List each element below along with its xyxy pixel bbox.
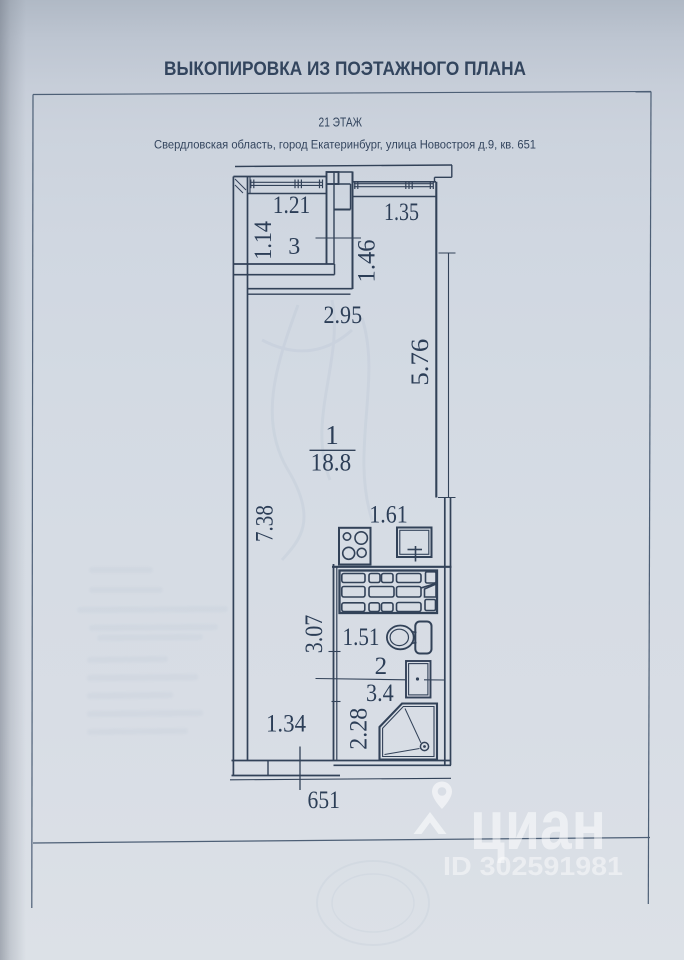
svg-text:2: 2 [375, 653, 388, 680]
svg-text:1.14: 1.14 [250, 221, 277, 260]
svg-text:1.35: 1.35 [384, 199, 419, 226]
svg-text:5.76: 5.76 [407, 339, 434, 386]
svg-text:3.4: 3.4 [366, 680, 394, 707]
svg-text:Свердловская область, город Ек: Свердловская область, город Екатеринбург… [154, 140, 536, 152]
svg-text:2.95: 2.95 [324, 302, 363, 329]
svg-text:1.51: 1.51 [343, 624, 380, 651]
svg-text:2.28: 2.28 [346, 708, 373, 750]
svg-text:3: 3 [288, 234, 300, 260]
svg-text:18.8: 18.8 [311, 450, 352, 477]
svg-text:ID 302591981: ID 302591981 [443, 851, 623, 881]
svg-text:21 ЭТАЖ: 21 ЭТАЖ [319, 116, 363, 130]
svg-text:1.21: 1.21 [273, 192, 310, 219]
svg-text:651: 651 [308, 787, 340, 814]
svg-text:7.38: 7.38 [252, 505, 279, 542]
svg-text:3.07: 3.07 [301, 615, 328, 654]
svg-text:1: 1 [325, 420, 339, 450]
svg-text:1.61: 1.61 [369, 502, 407, 529]
svg-text:1.46: 1.46 [354, 240, 381, 283]
svg-text:ВЫКОПИРОВКА ИЗ ПОЭТАЖНОГО ПЛАН: ВЫКОПИРОВКА ИЗ ПОЭТАЖНОГО ПЛАНА [164, 58, 526, 80]
svg-text:1.34: 1.34 [266, 711, 306, 738]
